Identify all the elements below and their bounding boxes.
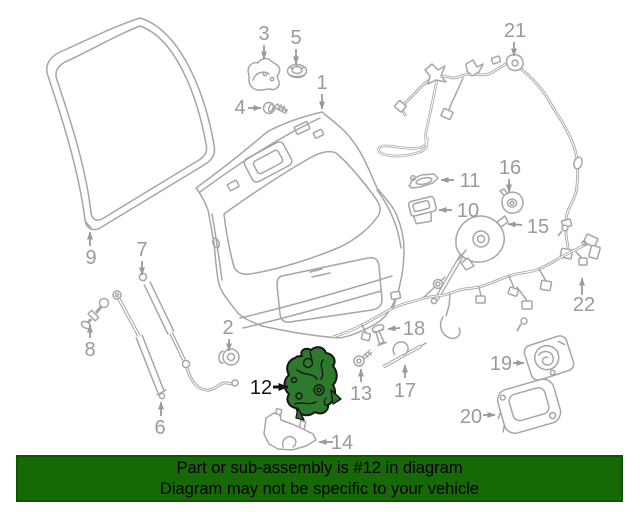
part-label-21: 21 — [504, 20, 526, 42]
part-label-4: 4 — [234, 97, 245, 119]
highlight-banner: Part or sub-assembly is #12 in diagram D… — [16, 455, 623, 502]
part-13-bolt — [354, 351, 371, 366]
part-label-5: 5 — [290, 27, 301, 49]
part-label-1: 1 — [316, 72, 327, 94]
part-17-rod-clip — [383, 342, 426, 367]
part-label-3: 3 — [258, 23, 269, 45]
part-16-grommet — [500, 189, 523, 213]
part-1-liftgate-panel — [196, 112, 404, 338]
part-19-camera-module — [523, 334, 576, 382]
exploded-parts-diagram: 12345678910111213141516171819202122 — [0, 0, 640, 512]
part-leader-18 — [388, 328, 400, 329]
part-20-bezel — [491, 377, 563, 437]
part-label-8: 8 — [84, 339, 95, 361]
banner-line-1: Part or sub-assembly is #12 in diagram — [176, 458, 462, 479]
part-2-bumper — [219, 349, 239, 365]
part-8-ball-stud — [80, 299, 108, 331]
part-leader-15 — [508, 224, 522, 225]
part-label-22: 22 — [573, 294, 595, 316]
part-label-12: 12 — [250, 377, 272, 399]
part-4-bolt — [264, 103, 288, 114]
part-label-15: 15 — [527, 216, 549, 238]
part-10-lamp-housing — [408, 196, 439, 226]
part-3-bracket — [248, 59, 279, 91]
part-label-16: 16 — [499, 157, 521, 179]
part-12-latch-highlighted — [285, 347, 342, 420]
part-label-10: 10 — [457, 200, 479, 222]
part-18-push-pin — [371, 323, 389, 345]
part-9-weatherstrip-seal — [47, 18, 215, 230]
part-label-19: 19 — [490, 353, 512, 375]
part-5-push-nut — [288, 64, 307, 78]
part-label-2: 2 — [222, 317, 233, 339]
part-label-11: 11 — [460, 170, 481, 192]
part-label-14: 14 — [331, 432, 353, 454]
part-11-license-lamp — [409, 174, 438, 188]
part-label-9: 9 — [85, 247, 96, 269]
part-label-6: 6 — [154, 417, 165, 439]
part-label-13: 13 — [350, 383, 372, 405]
part-label-20: 20 — [460, 406, 482, 428]
banner-line-2: Diagram may not be specific to your vehi… — [160, 479, 479, 500]
part-15-latch-actuator — [431, 216, 508, 304]
part-label-18: 18 — [403, 318, 425, 340]
part-label-7: 7 — [136, 239, 147, 261]
parts-diagram-page: 12345678910111213141516171819202122 Part… — [0, 0, 640, 512]
part-label-17: 17 — [394, 380, 416, 402]
